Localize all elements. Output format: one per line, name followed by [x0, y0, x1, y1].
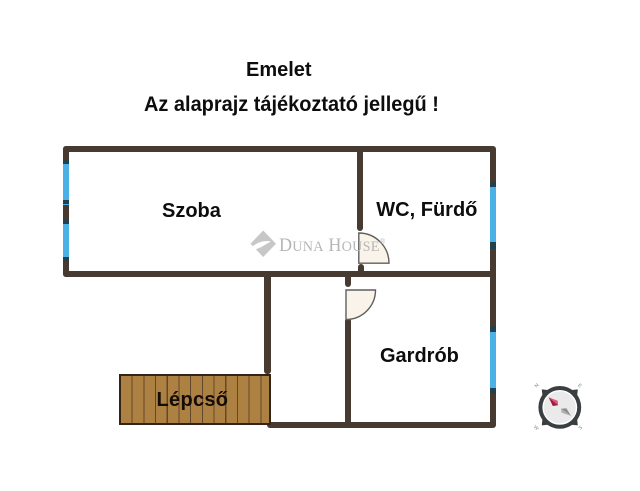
svg-text:N: N	[534, 382, 541, 389]
svg-text:E: E	[576, 383, 583, 390]
svg-text:S: S	[578, 424, 585, 431]
svg-text:W: W	[532, 424, 540, 432]
